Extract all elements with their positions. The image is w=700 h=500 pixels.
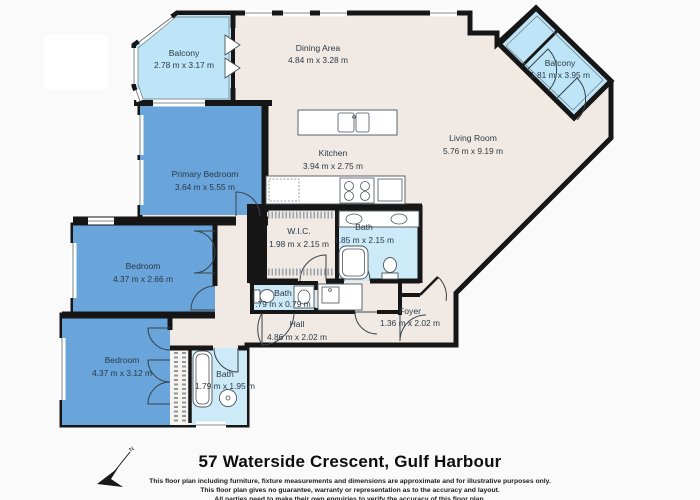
- dims-dining: 4.84 m x 3.28 m: [288, 55, 348, 65]
- label-bedroom-bottom: Bedroom: [105, 355, 140, 365]
- dims-kitchen: 3.94 m x 2.75 m: [303, 161, 363, 171]
- disclaimer-line-2: This floor plan gives no guarantee, warr…: [0, 487, 700, 494]
- disclaimer-line-3: All parties need to make their own enqui…: [0, 496, 700, 500]
- disclaimer-line-1: This floor plan including furniture, fix…: [0, 478, 700, 485]
- dims-bath-bottom: 1.79 m x 1.95 m: [195, 381, 255, 391]
- floor-plan-drawing: Balcony 2.78 m x 3.17 m Dining Area 4.84…: [0, 0, 700, 500]
- dims-balcony-tl: 2.78 m x 3.17 m: [154, 60, 214, 70]
- balcony-top-left-area: [134, 13, 233, 103]
- page-title: 57 Waterside Crescent, Gulf Harbour: [0, 452, 700, 472]
- label-bedroom-mid: Bedroom: [126, 261, 161, 271]
- closet-strip-area: [170, 348, 190, 425]
- dims-wic: 1.98 m x 2.15 m: [269, 239, 329, 249]
- label-primary-bedroom: Primary Bedroom: [172, 169, 239, 179]
- dims-primary-bedroom: 3.64 m x 5.55 m: [175, 182, 235, 192]
- background-white-patch: [45, 35, 107, 90]
- dims-balcony-tr: 1.81 m x 3.95 m: [530, 70, 590, 80]
- label-bath-ensuite: Bath: [355, 222, 373, 232]
- dims-living: 5.76 m x 9.19 m: [443, 146, 503, 156]
- label-dining: Dining Area: [296, 43, 341, 53]
- label-kitchen: Kitchen: [319, 148, 348, 158]
- label-foyer: Foyer: [399, 306, 421, 316]
- dims-bath-small: .79 m x 0.79 m: [255, 299, 310, 309]
- label-hall: Hall: [290, 319, 305, 329]
- dims-hall: 4.86 m x 2.02 m: [267, 332, 327, 342]
- label-living: Living Room: [449, 133, 497, 143]
- dims-bedroom-bottom: 4.37 m x 3.12 m: [92, 368, 152, 378]
- dims-bath-ensuite: 1.85 m x 2.15 m: [334, 235, 394, 245]
- label-bath-bottom: Bath: [216, 369, 234, 379]
- label-wic: W.I.C.: [287, 226, 310, 236]
- label-balcony-tl: Balcony: [169, 48, 200, 58]
- dims-foyer: 1.36 m x 2.02 m: [380, 318, 440, 328]
- kitchen-counter: [266, 176, 405, 204]
- laundry-nook: [318, 284, 362, 310]
- dims-bedroom-mid: 4.37 m x 2.66 m: [113, 274, 173, 284]
- floor-plan-page: Balcony 2.78 m x 3.17 m Dining Area 4.84…: [0, 0, 700, 500]
- label-balcony-tr: Balcony: [545, 58, 576, 68]
- kitchen-island: [298, 110, 397, 135]
- label-bath-small: Bath: [274, 288, 292, 298]
- primary-bedroom-area: [140, 103, 265, 215]
